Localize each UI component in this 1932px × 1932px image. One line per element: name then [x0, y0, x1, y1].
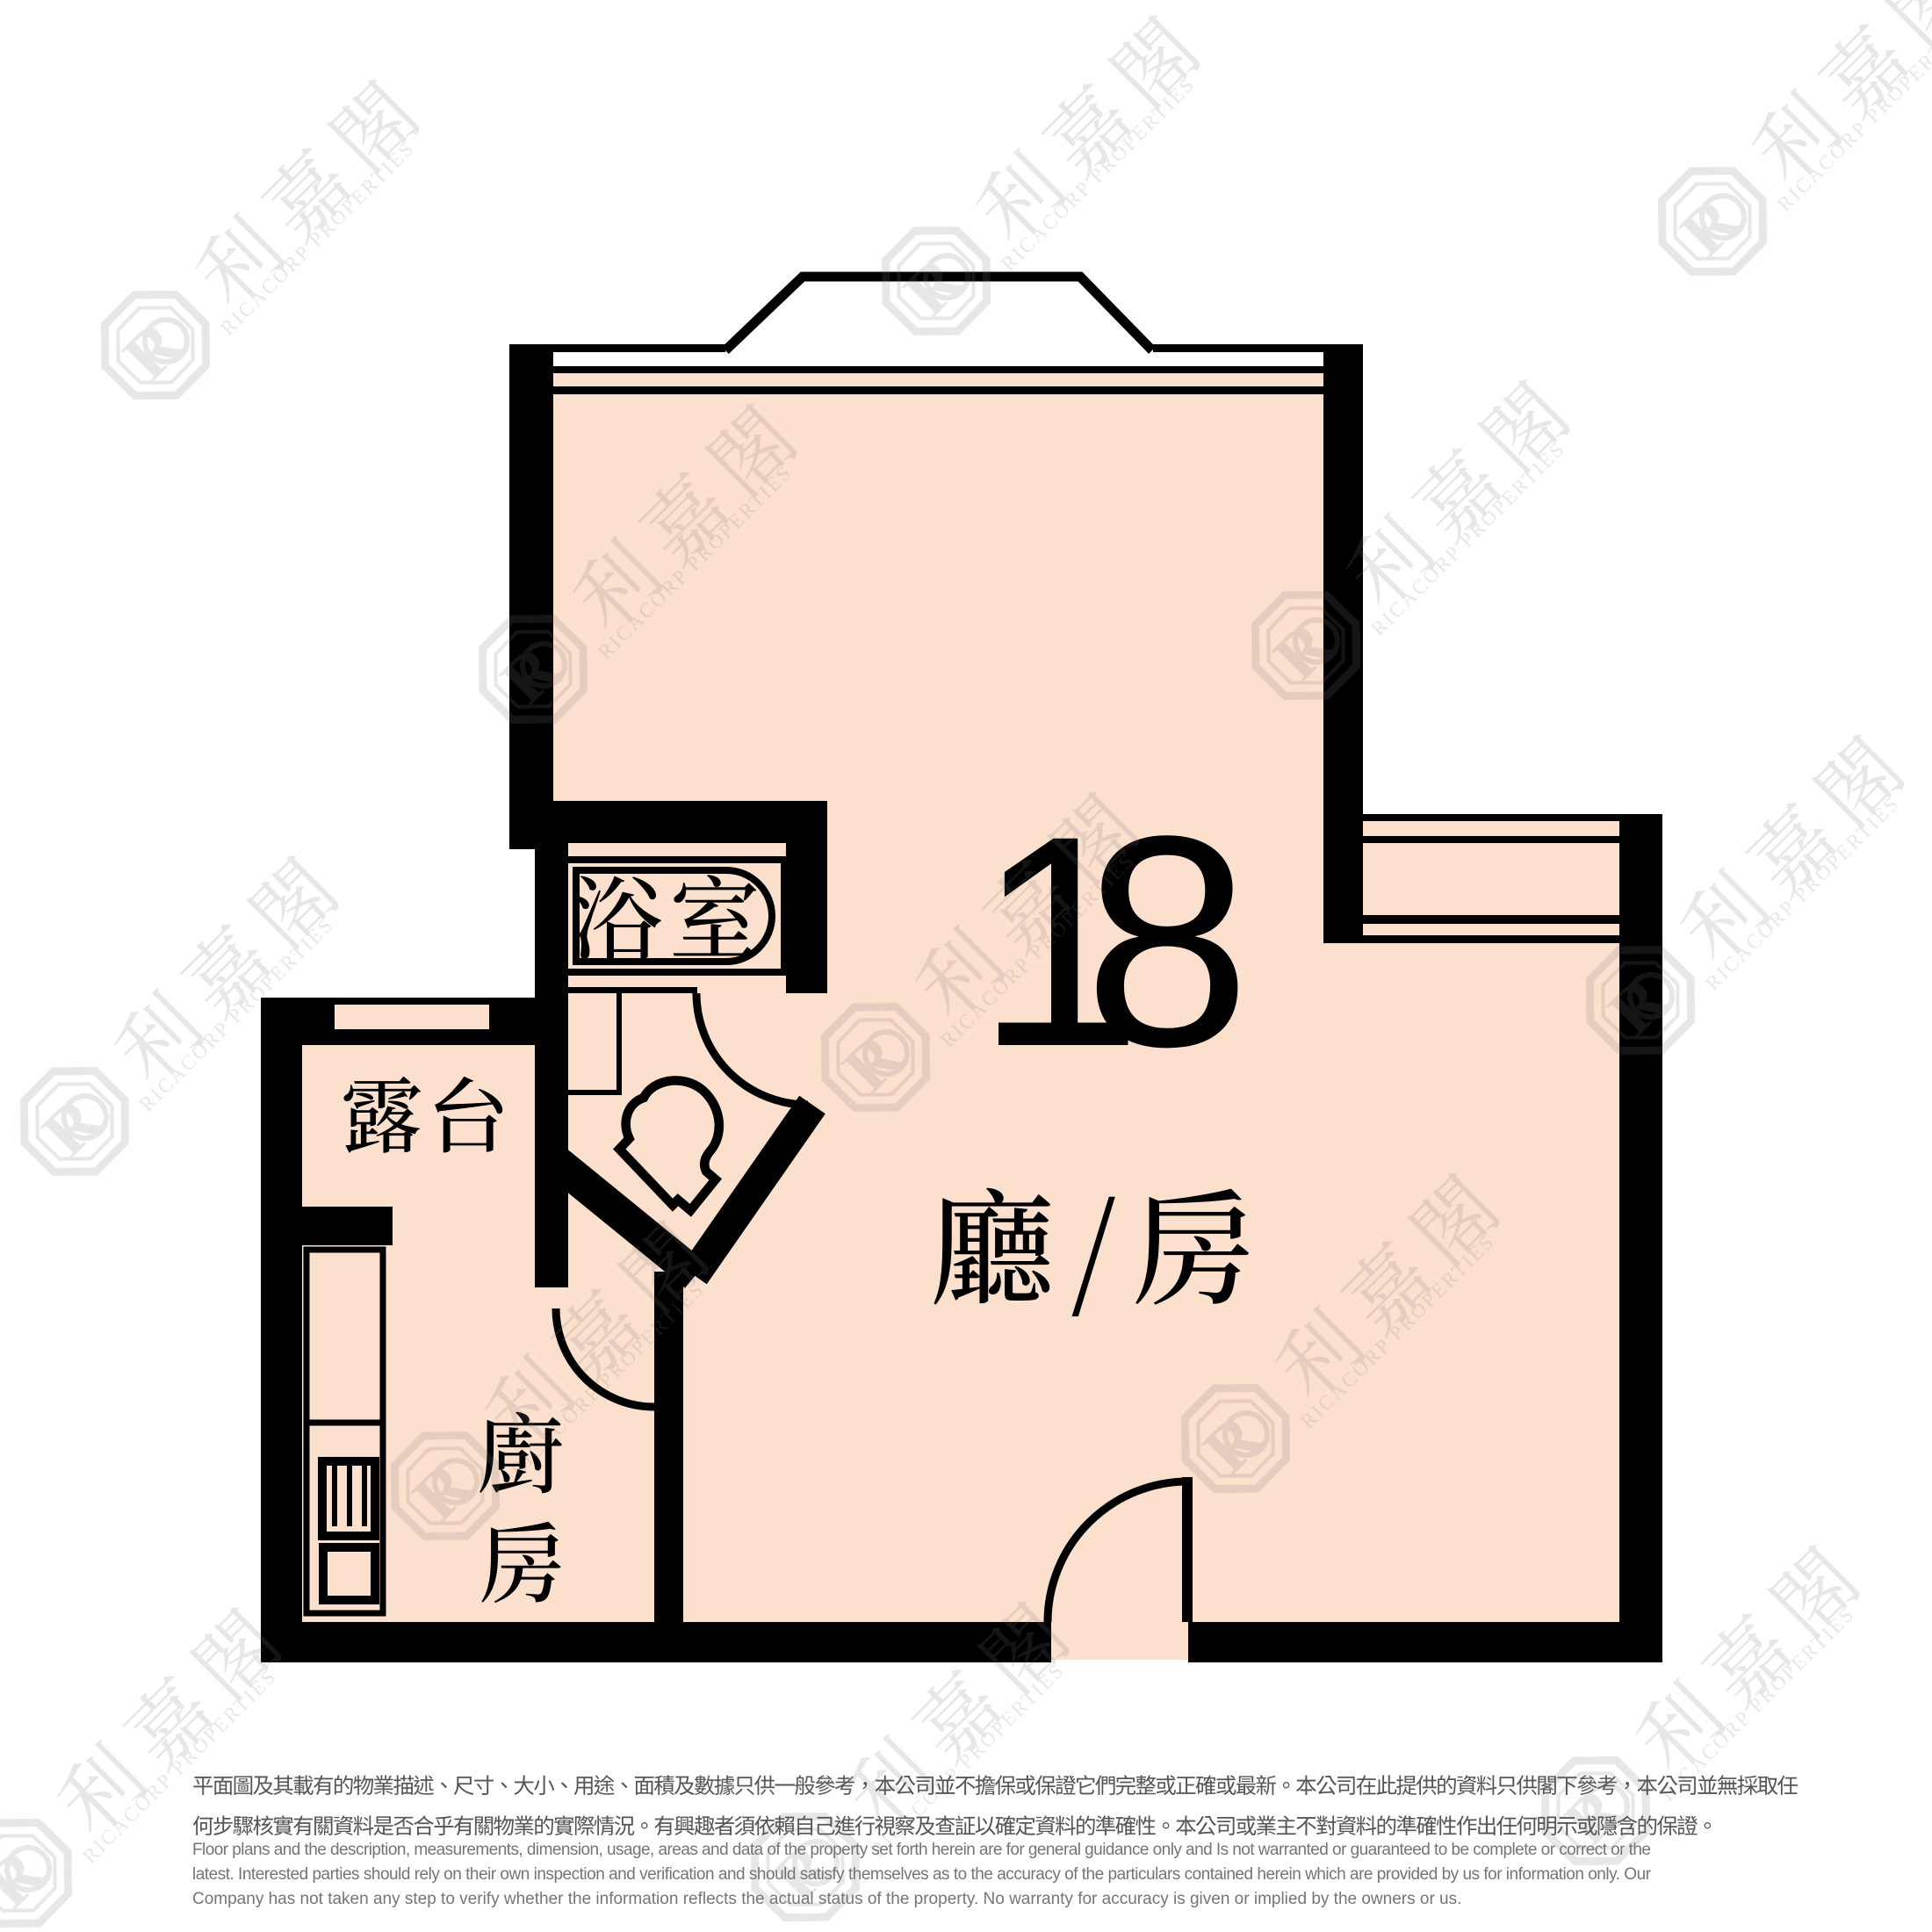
svg-text:Floor plans and the descriptio: Floor plans and the description, measure… — [192, 1841, 1652, 1908]
svg-text:8: 8 — [1084, 774, 1251, 1109]
